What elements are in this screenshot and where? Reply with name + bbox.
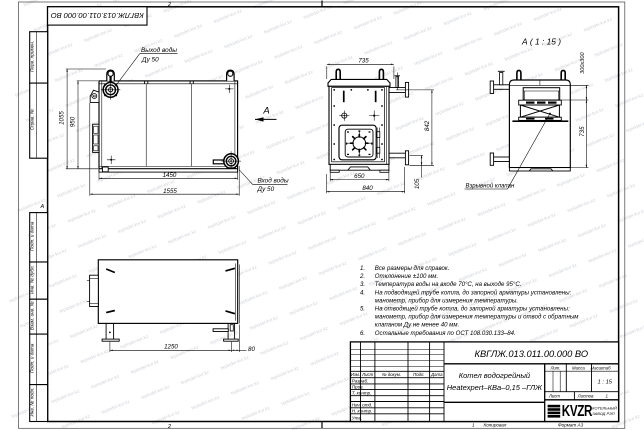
- svg-text:735: 735: [579, 126, 586, 137]
- svg-text:КВГЛЖ.013.011.00.000 ВО: КВГЛЖ.013.011.00.000 ВО: [474, 349, 588, 359]
- svg-text:Лист: Лист: [361, 372, 373, 377]
- svg-text:Ду 50: Ду 50: [141, 56, 159, 63]
- svg-text:А: А: [262, 106, 269, 117]
- svg-text:950: 950: [69, 116, 76, 127]
- svg-text:Т. контр.: Т. контр.: [352, 391, 372, 396]
- svg-text:Взам. инв. №: Взам. инв. №: [30, 301, 35, 330]
- svg-text:842: 842: [424, 120, 431, 131]
- svg-text:Копировал: Копировал: [484, 423, 507, 428]
- svg-text:Вход воды: Вход воды: [258, 177, 289, 185]
- svg-text:Лит.: Лит.: [549, 366, 560, 371]
- svg-text:2: 2: [167, 424, 171, 430]
- svg-text:манометр, прибор для измерения: манометр, прибор для измерения температу…: [375, 314, 580, 321]
- svg-text:Дата: Дата: [430, 372, 443, 377]
- svg-text:A: A: [40, 204, 45, 210]
- svg-text:Подп. и дата: Подп. и дата: [30, 343, 35, 373]
- svg-text:300х300: 300х300: [580, 51, 586, 73]
- svg-text:Инв. № дубл.: Инв. № дубл.: [30, 265, 35, 294]
- svg-text:5.: 5.: [360, 306, 365, 313]
- svg-text:Разраб.: Разраб.: [352, 379, 369, 384]
- svg-text:105: 105: [414, 178, 421, 189]
- svg-text:№ докум.: № докум.: [382, 372, 401, 377]
- svg-text:4.: 4.: [360, 289, 365, 296]
- svg-text:1055: 1055: [58, 111, 65, 125]
- svg-text:На отводящей трубе котла, до з: На отводящей трубе котла, до запорной ар…: [375, 306, 570, 313]
- svg-text:840: 840: [362, 185, 373, 192]
- svg-text:Пров.: Пров.: [352, 385, 364, 390]
- svg-text:Heatexpert–КВа–0,15 –ГЛЖ: Heatexpert–КВа–0,15 –ГЛЖ: [447, 383, 543, 392]
- svg-text:6.: 6.: [360, 330, 365, 337]
- svg-text:Лист: Лист: [548, 394, 560, 399]
- svg-text:Остальные требования по ОСТ 10: Остальные требования по ОСТ 108.030.133–…: [375, 330, 516, 337]
- svg-text:Справ. №: Справ. №: [30, 109, 35, 130]
- svg-text:1.: 1.: [360, 265, 365, 272]
- svg-text:Ду 50: Ду 50: [257, 186, 275, 193]
- svg-text:3.: 3.: [360, 281, 365, 288]
- svg-text:Масштаб: Масштаб: [590, 366, 611, 371]
- svg-text:КОТЕЛЬНЫЙ: КОТЕЛЬНЫЙ: [592, 405, 617, 410]
- svg-text:650: 650: [354, 173, 365, 180]
- svg-text:А ( 1 : 15 ): А ( 1 : 15 ): [521, 37, 561, 47]
- svg-text:Подп.: Подп.: [413, 372, 424, 377]
- svg-text:На подводящей трубе котла, до: На подводящей трубе котла, до запорной а…: [375, 289, 572, 296]
- svg-text:Изм.: Изм.: [351, 372, 360, 377]
- svg-text:1: 1: [472, 423, 475, 428]
- svg-text:1 : 15: 1 : 15: [598, 379, 613, 385]
- svg-text:2.: 2.: [359, 273, 365, 280]
- svg-text:Листов: Листов: [577, 394, 594, 399]
- svg-text:1250: 1250: [164, 344, 178, 351]
- svg-text:Подп. и дата: Подп. и дата: [30, 221, 35, 251]
- svg-text:Все размеры для справок.: Все размеры для справок.: [375, 265, 450, 272]
- svg-text:КВГЛЖ.013.011.00.000 ВО: КВГЛЖ.013.011.00.000 ВО: [51, 11, 144, 20]
- svg-text:манометр, прибор для измерения: манометр, прибор для измерения температу…: [375, 297, 518, 304]
- svg-text:Масса: Масса: [572, 366, 585, 371]
- svg-text:80: 80: [248, 346, 255, 353]
- svg-text:Инв. № подл.: Инв. № подл.: [30, 387, 35, 416]
- svg-text:KVZR: KVZR: [562, 403, 593, 420]
- svg-text:Отклонение ±100 мм.: Отклонение ±100 мм.: [375, 273, 438, 280]
- svg-text:клапаном Ду не менее 40 мм.: клапаном Ду не менее 40 мм.: [375, 322, 459, 329]
- svg-text:1450: 1450: [163, 172, 177, 179]
- svg-text:1555: 1555: [163, 188, 177, 195]
- svg-text:Утв.: Утв.: [352, 415, 362, 420]
- svg-text:Выход воды: Выход воды: [141, 46, 177, 54]
- svg-text:Нач. отд.: Нач. отд.: [352, 403, 373, 408]
- svg-text:735: 735: [358, 58, 369, 65]
- svg-text:ЗАВОД РЭП: ЗАВОД РЭП: [592, 411, 615, 416]
- svg-text:Перв. примен.: Перв. примен.: [30, 41, 35, 72]
- svg-text:Взрывной клапан: Взрывной клапан: [466, 183, 515, 190]
- svg-text:Формат А3: Формат А3: [558, 423, 584, 428]
- svg-text:Н. контр.: Н. контр.: [352, 409, 373, 414]
- svg-text:Котел водогрейный: Котел водогрейный: [459, 371, 531, 380]
- svg-text:Температура воды на входе 70°С: Температура воды на входе 70°С, на выход…: [375, 281, 522, 288]
- svg-text:2: 2: [167, 2, 171, 8]
